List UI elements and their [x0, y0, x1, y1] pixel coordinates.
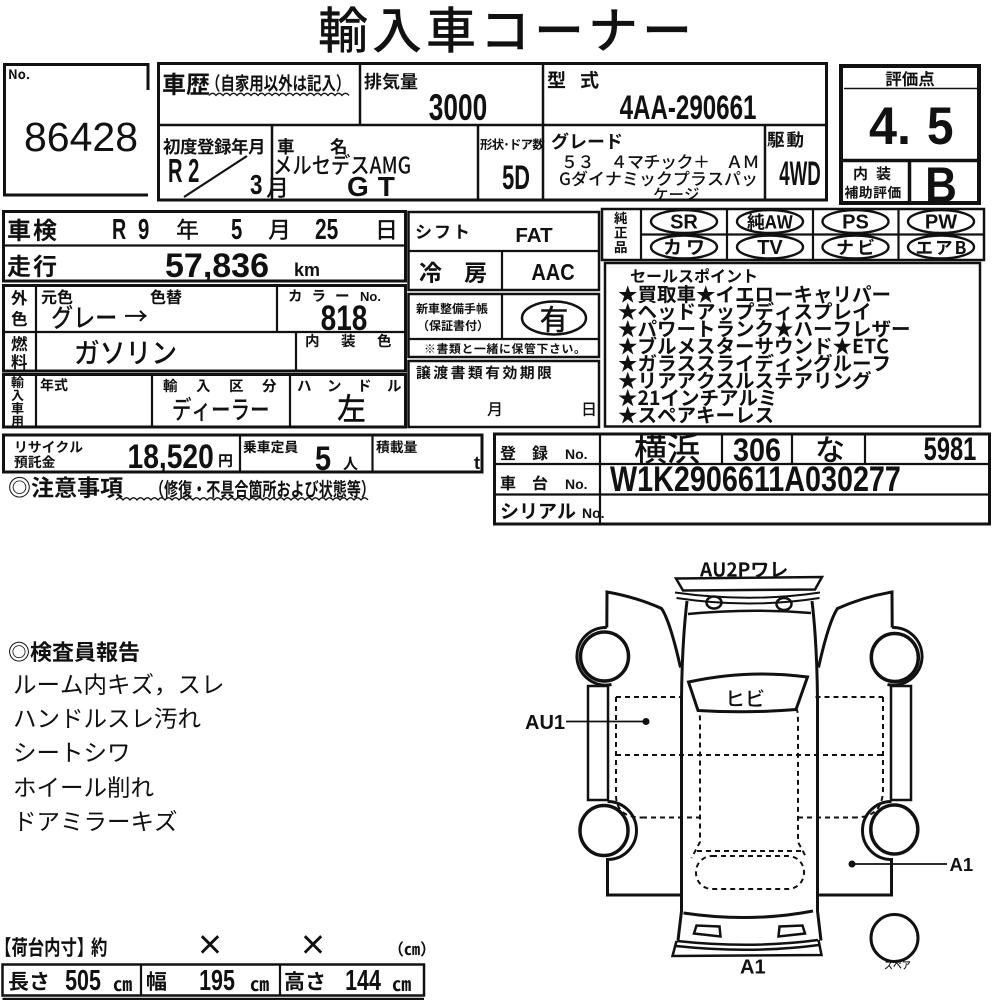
svg-text:18,520: 18,520 [128, 438, 214, 476]
svg-text:No.: No. [582, 505, 605, 521]
svg-text:km: km [294, 260, 320, 280]
svg-text:PW: PW [925, 212, 957, 234]
svg-text:GT: GT [347, 171, 404, 202]
svg-text:5: 5 [927, 96, 954, 156]
svg-text:195: 195 [199, 965, 235, 997]
svg-text:No.: No. [565, 446, 588, 462]
svg-text:3000: 3000 [429, 87, 487, 129]
svg-text:5: 5 [231, 214, 242, 246]
svg-text:86428: 86428 [24, 114, 138, 160]
svg-text:5981: 5981 [924, 432, 977, 467]
svg-text:TV: TV [757, 237, 783, 259]
svg-text:B: B [925, 156, 957, 212]
svg-text:4.: 4. [869, 96, 911, 155]
svg-text:5: 5 [315, 439, 331, 478]
svg-text:SR: SR [670, 212, 698, 234]
svg-text:R: R [112, 214, 126, 246]
svg-text:818: 818 [321, 298, 368, 338]
svg-text:25: 25 [315, 214, 338, 246]
svg-text:t: t [474, 453, 480, 473]
svg-text:FAT: FAT [515, 224, 553, 247]
svg-text:144: 144 [345, 965, 381, 997]
svg-text:AU1: AU1 [525, 712, 565, 734]
svg-text:R 2: R 2 [168, 152, 199, 189]
svg-text:505: 505 [65, 965, 101, 997]
svg-text:5D: 5D [502, 159, 530, 197]
svg-text:A1: A1 [950, 854, 974, 875]
svg-text:W1K2906611A030277: W1K2906611A030277 [610, 459, 901, 499]
svg-text:No.: No. [565, 476, 588, 492]
svg-text:PS: PS [842, 212, 869, 234]
svg-text:A1: A1 [740, 957, 766, 979]
svg-text:9: 9 [138, 214, 149, 246]
svg-text:AAC: AAC [531, 259, 574, 286]
svg-text:3: 3 [250, 170, 262, 201]
svg-text:4WD: 4WD [779, 154, 821, 192]
svg-text:4AA-290661: 4AA-290661 [620, 89, 757, 127]
svg-text:57,836: 57,836 [165, 247, 269, 285]
